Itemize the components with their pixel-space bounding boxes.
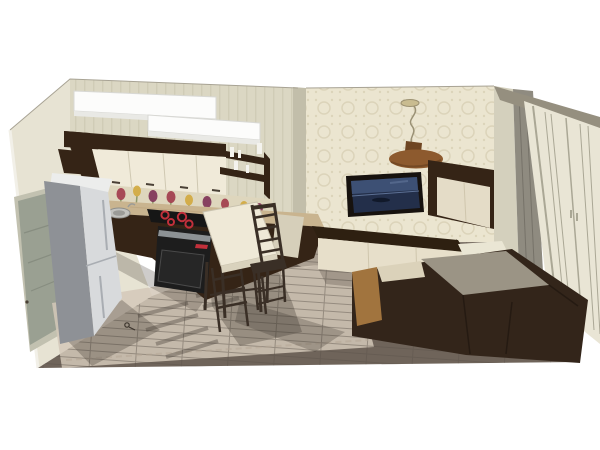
curtain-panel (513, 89, 545, 308)
tulip-purple (203, 196, 212, 208)
tulip-backsplash (108, 185, 272, 217)
fridge-side (44, 181, 94, 344)
door-handle (25, 300, 28, 303)
ladderback-shadows (138, 288, 239, 357)
wardrobe-door-lines (533, 106, 600, 334)
dining-table-edge (221, 254, 278, 273)
living-room (312, 100, 588, 364)
base-cabinets (104, 213, 324, 300)
cooktop (147, 209, 214, 228)
left-wall-cut-edge (10, 130, 38, 368)
console-side (456, 239, 464, 284)
wall-cabinet-split (464, 182, 466, 222)
tulip-red (167, 191, 176, 203)
tulip-yellow (185, 195, 193, 206)
cooktop-burners (161, 211, 192, 227)
tv-frame (346, 172, 424, 217)
floor (38, 213, 578, 368)
cooktop-glass (147, 209, 214, 228)
sofa-tan-cushion (352, 267, 382, 326)
wardrobe-handle (570, 210, 572, 218)
sofa-body (352, 249, 588, 363)
pendant-lamp (389, 100, 443, 169)
floor-shadows (62, 246, 476, 366)
dining-area (203, 202, 287, 332)
sofa-seat-cushion (421, 251, 549, 295)
corner-sofa (352, 249, 588, 363)
wood-floor (38, 242, 578, 368)
kitchen-back-wall (70, 79, 298, 243)
floor-plank-lines (38, 242, 578, 368)
tulip-yellow (133, 186, 141, 197)
tulip-purple (255, 203, 263, 213)
shelf-board (226, 151, 270, 166)
pendant-hub (405, 141, 422, 153)
chair-seat (250, 258, 287, 274)
upper-cabinet-handles (112, 182, 220, 191)
console-front (318, 238, 465, 284)
end-cabinet-panel (272, 214, 304, 258)
fridge-shadow (62, 300, 160, 366)
sofa-cream-cushion (377, 261, 425, 282)
soffit-front-a (74, 111, 216, 124)
console-shadow (318, 268, 476, 300)
open-shelves (220, 143, 270, 200)
sink-bowl (113, 210, 125, 216)
door-panel-lines (24, 223, 65, 291)
door-leaf (18, 193, 66, 345)
oven-body (154, 226, 212, 294)
dining-table-top (203, 202, 277, 266)
wall-cabinet (428, 160, 494, 229)
fridge-front (80, 186, 122, 336)
tv-screen-water (351, 177, 420, 213)
countertop (100, 200, 324, 227)
chair-shadow-long (235, 300, 345, 352)
wardrobe-body (524, 101, 600, 344)
interior-door (14, 187, 72, 352)
curtain-folds (519, 95, 536, 303)
tv-console (312, 226, 465, 284)
built-in-oven (154, 226, 212, 294)
soffit-top-b (148, 115, 260, 140)
fridge-door-split (86, 256, 116, 266)
counter-marble-streak (130, 207, 300, 219)
sink (108, 204, 135, 218)
tulip-stems (120, 196, 259, 217)
wall-corner-divider (293, 87, 306, 246)
wardrobe-cornice-beam (494, 86, 600, 133)
kitchen (44, 131, 324, 344)
pendant-plate (389, 150, 443, 169)
soffit-top-a (74, 91, 216, 119)
shelf-side (264, 152, 270, 200)
console-door-lines (368, 243, 417, 280)
wall-corner-return (494, 86, 520, 306)
sun-patch-border (66, 340, 368, 360)
oven-door-glass (158, 250, 204, 288)
interior-3d-render (0, 0, 600, 450)
tulip-blooms (117, 186, 264, 214)
console-top (312, 226, 465, 252)
fridge-top-cabinet (58, 149, 106, 176)
dining-chair-front (212, 262, 248, 332)
kitchen-shadow (96, 246, 206, 312)
pendant-plate-rim (391, 160, 441, 167)
sunlight-patch-large (52, 262, 374, 368)
shelf-bottles (230, 143, 262, 173)
shelf-board (220, 167, 264, 182)
tv-screen-sky (351, 177, 418, 194)
key-on-floor (125, 323, 135, 330)
side-panel (458, 241, 509, 259)
tv-horizon (352, 191, 419, 196)
page-background (0, 0, 600, 450)
wall-top-edges (10, 79, 494, 130)
fridge-top (50, 173, 112, 193)
walls (10, 79, 600, 368)
refrigerator (44, 173, 122, 344)
wardrobe-handle (576, 213, 578, 221)
wardrobe (524, 101, 600, 344)
wall-mounted-tv (346, 172, 424, 217)
table-legs (205, 256, 268, 318)
soffit-front-b (148, 131, 260, 145)
upper-cabinets (92, 149, 226, 197)
oven-display (195, 244, 208, 249)
pendant-top-disc (401, 100, 419, 107)
tulip-red (221, 199, 229, 210)
table-shadow (208, 258, 302, 346)
wall-cabinet-shell (428, 160, 494, 229)
upper-cabinet-door-lines (128, 151, 198, 194)
sink-rim (108, 208, 130, 218)
ceiling-soffit (74, 91, 260, 145)
tulip-red (117, 188, 126, 200)
backsplash-panel (108, 185, 272, 217)
living-room-wallpaper-wall (306, 86, 494, 246)
sofa-seams (463, 285, 578, 354)
wall-cabinet-front (437, 177, 490, 228)
oven-handle (158, 230, 211, 242)
tulip-yellow (240, 201, 248, 211)
door-frame (14, 187, 72, 352)
sunlight-patch-small (251, 213, 348, 268)
dining-chair-right (251, 203, 286, 314)
pendant-stem (410, 106, 415, 145)
fridge-handles (100, 200, 107, 318)
upper-cabinet-cornice (64, 131, 226, 157)
corner-cabinet-side (64, 131, 116, 188)
left-wall (10, 79, 152, 368)
curtain (513, 89, 545, 308)
tulip-purple (149, 190, 158, 202)
tv-cloud (390, 181, 408, 183)
tv-boat (372, 198, 390, 202)
sink-faucet (128, 204, 135, 207)
